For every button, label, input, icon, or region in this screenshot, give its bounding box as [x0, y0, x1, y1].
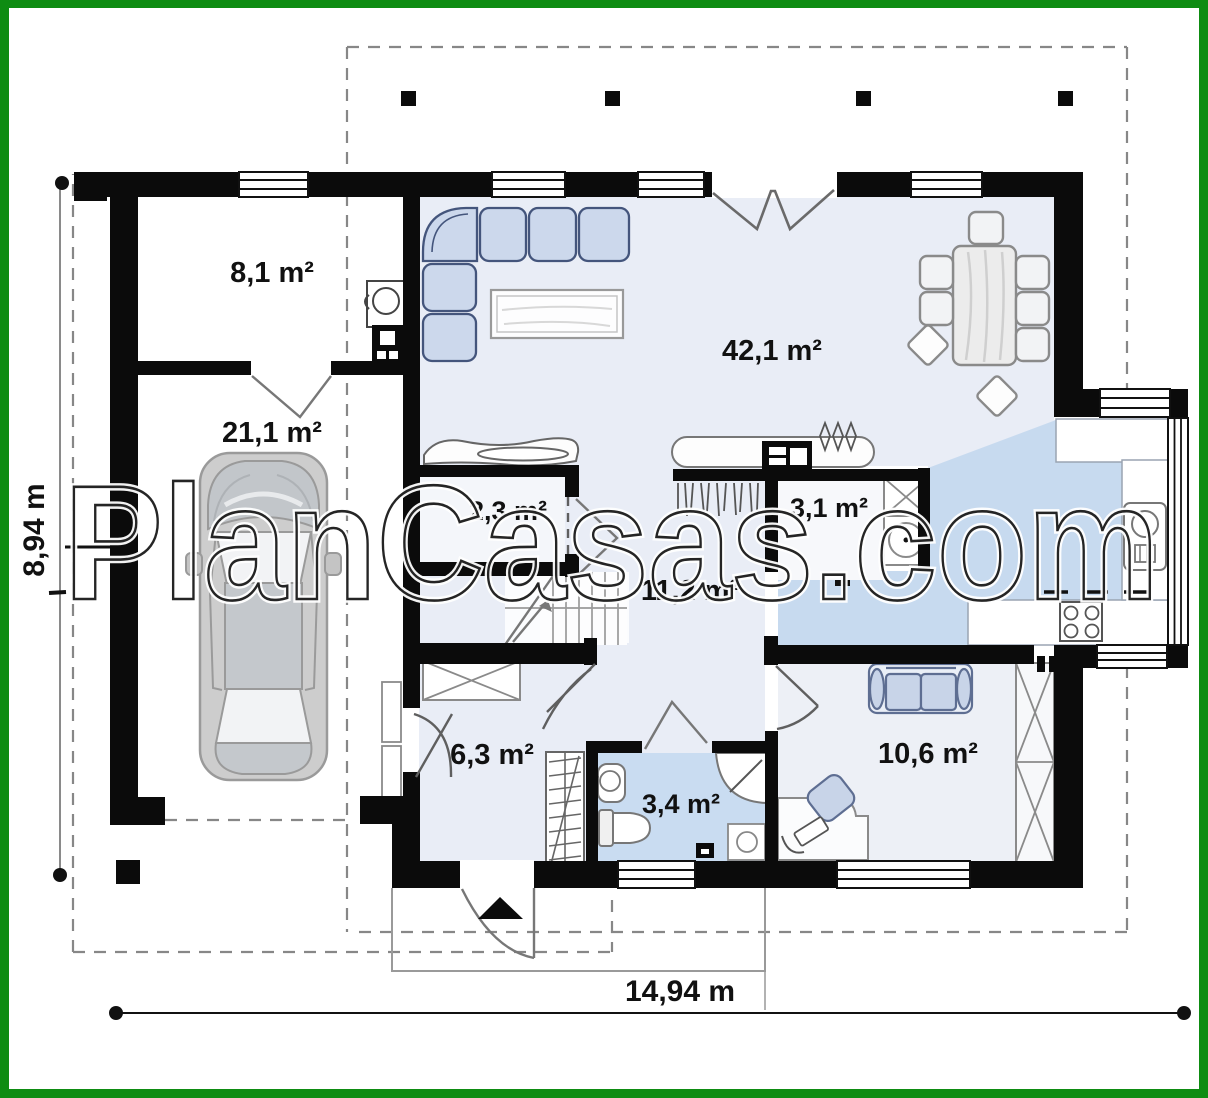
svg-text:3,4 m²: 3,4 m²: [642, 789, 720, 819]
svg-text:14,94 m: 14,94 m: [625, 975, 735, 1008]
svg-text:21,1 m²: 21,1 m²: [222, 417, 322, 449]
svg-text:8,94 m: 8,94 m: [18, 483, 51, 576]
svg-text:42,1 m²: 42,1 m²: [722, 335, 822, 367]
svg-text:PlanCasas.com: PlanCasas.com: [64, 451, 1159, 634]
svg-text:6,3 m²: 6,3 m²: [450, 739, 534, 771]
svg-text:8,1 m²: 8,1 m²: [230, 257, 314, 289]
svg-text:10,6 m²: 10,6 m²: [878, 738, 978, 770]
